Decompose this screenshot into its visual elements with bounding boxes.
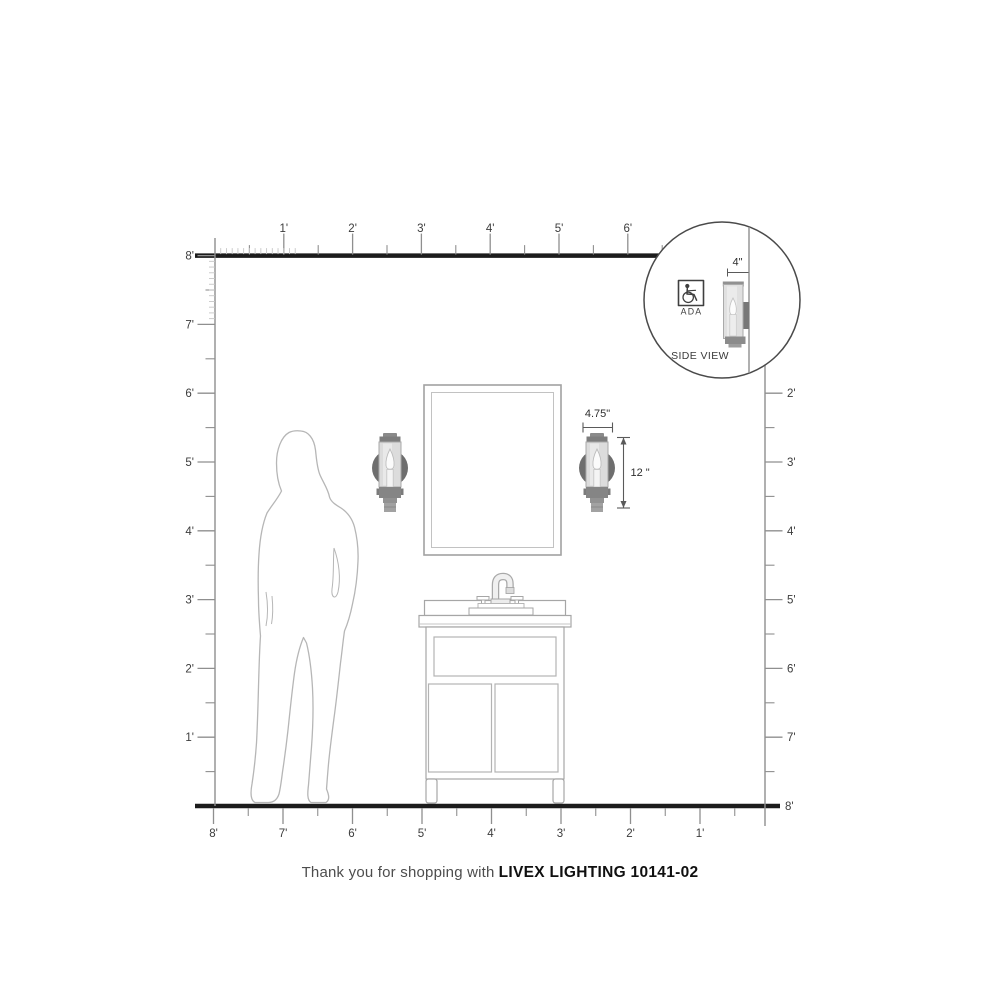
- bottom-ruler-label-6ft: 6': [348, 828, 357, 840]
- right-ruler-label-7ft: 7': [787, 732, 796, 744]
- bottom-ruler-label-3ft: 3': [557, 828, 566, 840]
- width-dimension: 4.75": [583, 408, 613, 433]
- left-ruler-label-2ft: 2': [185, 663, 194, 675]
- dimension-diagram-page: 4.75" 12 " 1' 2' 3' 4' 5' 6' 8' 7' 6' 5'…: [0, 0, 1000, 1000]
- depth-dimension-label: 4": [732, 257, 742, 269]
- left-ruler-label-6ft: 6': [185, 388, 194, 400]
- bottom-ruler-label-1ft: 1': [696, 828, 705, 840]
- vanity-cabinet: [419, 601, 571, 804]
- right-ruler-label-8ft: 8': [785, 801, 794, 813]
- right-ruler-label-2ft: 2': [787, 388, 796, 400]
- faucet: [469, 577, 533, 616]
- bottom-ruler-label-4ft: 4': [487, 828, 496, 840]
- left-ruler-labels: 8' 7' 6' 5' 4' 3' 2' 1': [185, 251, 194, 745]
- side-view-inset: 4" ADA SIDE VIEW: [644, 222, 800, 378]
- top-ruler-label-6ft: 6': [624, 223, 633, 235]
- right-ruler-label-5ft: 5': [787, 595, 796, 607]
- right-ruler-label-4ft: 4': [787, 526, 796, 538]
- right-ruler-label-6ft: 6': [787, 663, 796, 675]
- top-ruler-label-2ft: 2': [348, 223, 357, 235]
- top-ruler-label-4ft: 4': [486, 223, 495, 235]
- left-ruler-label-7ft: 7': [185, 319, 194, 331]
- mirror: [424, 385, 561, 555]
- left-ruler-label-8ft: 8': [185, 251, 194, 263]
- width-dimension-label: 4.75": [585, 408, 610, 420]
- right-ruler-labels: 2' 3' 4' 5' 6' 7' 8': [785, 388, 796, 813]
- footer-prefix: Thank you for shopping with: [302, 864, 495, 881]
- left-ruler-label-5ft: 5': [185, 457, 194, 469]
- scale-figure-silhouette: [251, 431, 358, 803]
- diagram-canvas: 4.75" 12 " 1' 2' 3' 4' 5' 6' 8' 7' 6' 5'…: [0, 0, 1000, 1000]
- top-ruler-label-1ft: 1': [280, 223, 289, 235]
- right-wall-sconce: [579, 433, 615, 512]
- right-ruler-label-3ft: 3': [787, 457, 796, 469]
- ada-icon: [679, 281, 704, 306]
- bottom-ruler-label-5ft: 5': [418, 828, 427, 840]
- bottom-ruler-label-7ft: 7': [279, 828, 288, 840]
- ada-icon-label: ADA: [681, 307, 703, 317]
- bottom-ruler-label-2ft: 2': [626, 828, 635, 840]
- height-dimension: 12 ": [617, 438, 650, 509]
- left-wall-sconce: [372, 433, 408, 512]
- footer-note: Thank you for shopping withLIVEX LIGHTIN…: [0, 864, 1000, 882]
- height-dimension-label: 12 ": [631, 467, 650, 479]
- bottom-ruler-labels: 8' 7' 6' 5' 4' 3' 2' 1': [209, 828, 704, 840]
- top-ruler-label-3ft: 3': [417, 223, 426, 235]
- bottom-ruler-label-8ft: 8': [209, 828, 218, 840]
- left-ruler-label-4ft: 4': [185, 526, 194, 538]
- side-view-label: SIDE VIEW: [671, 350, 729, 362]
- product-id: LIVEX LIGHTING 10141-02: [499, 864, 699, 881]
- left-ruler-label-3ft: 3': [185, 595, 194, 607]
- top-ruler-labels: 1' 2' 3' 4' 5' 6': [280, 223, 633, 235]
- top-ruler-label-5ft: 5': [555, 223, 564, 235]
- left-ruler-label-1ft: 1': [185, 732, 194, 744]
